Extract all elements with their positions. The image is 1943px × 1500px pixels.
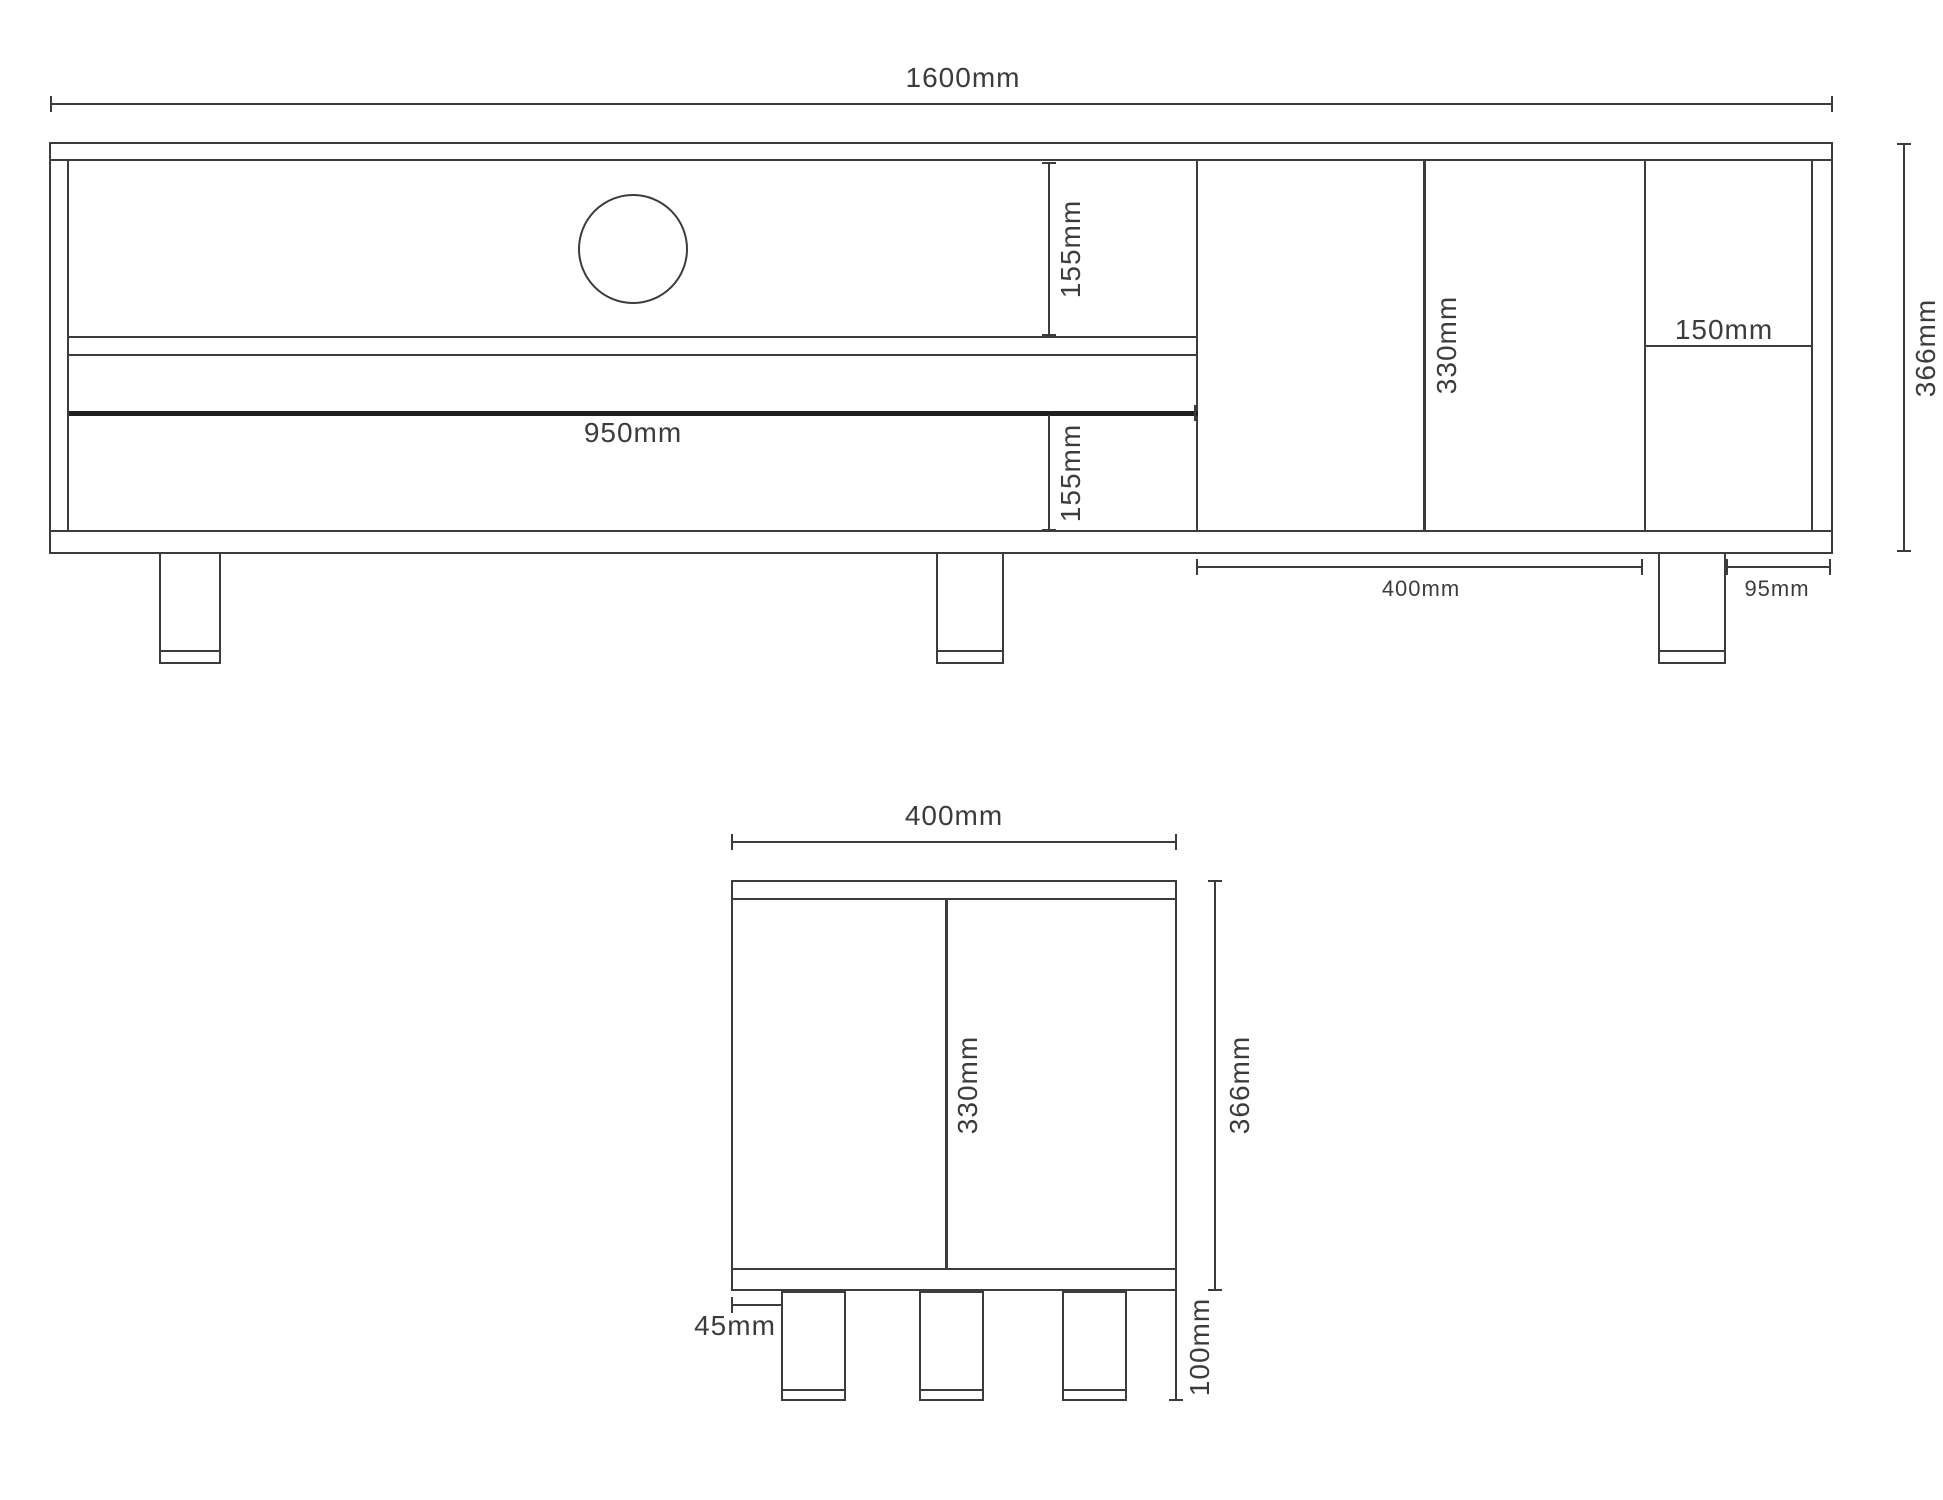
leg-height-bottom-tick [1169, 1399, 1183, 1401]
side-interior-height-label: 330mm [952, 1036, 984, 1134]
side-leg-right-foot-line [1062, 1389, 1127, 1391]
side-overall-height-dimension-line [1214, 880, 1216, 1291]
side-bottom-panel-inner-line [731, 1268, 1177, 1270]
side-overall-height-top-tick [1208, 880, 1222, 882]
side-leg-left [781, 1291, 846, 1401]
leg-height-dimension-line [1175, 1291, 1177, 1401]
leg-inset-dimension-line [731, 1304, 781, 1306]
side-leg-middle [919, 1291, 984, 1401]
side-depth-right-tick [1175, 834, 1177, 850]
side-middle-divider [945, 898, 948, 1270]
side-overall-height-bottom-tick [1208, 1289, 1222, 1291]
side-depth-label: 400mm [854, 800, 1054, 832]
side-leg-middle-foot-line [919, 1389, 984, 1391]
side-top-panel-inner-line [731, 898, 1177, 900]
side-leg-left-foot-line [781, 1389, 846, 1391]
side-view: 400mm 330mm 366mm 100mm 45mm [0, 0, 1943, 1500]
leg-height-label: 100mm [1184, 1298, 1216, 1396]
side-overall-height-label: 366mm [1224, 1036, 1256, 1134]
furniture-dimension-drawing: 1600mm 950mm 155mm 155mm 330mm [0, 0, 1943, 1500]
leg-inset-label: 45mm [655, 1310, 815, 1342]
side-depth-left-tick [731, 834, 733, 850]
side-leg-right [1062, 1291, 1127, 1401]
side-depth-dimension-line [731, 841, 1177, 843]
